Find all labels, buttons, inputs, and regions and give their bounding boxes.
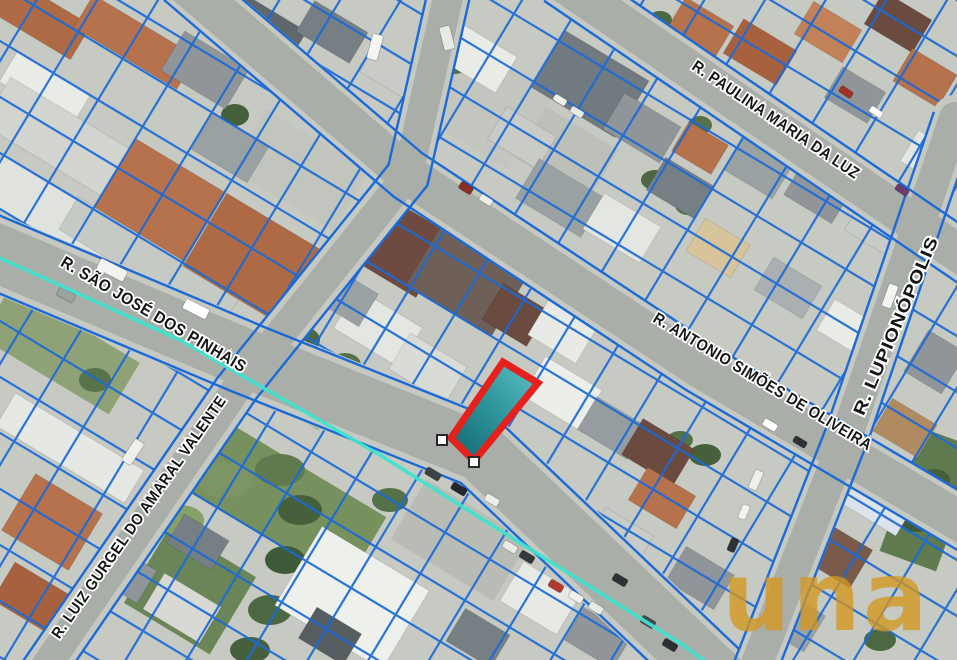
parcel-handle[interactable] xyxy=(437,435,447,445)
parcel-handle[interactable] xyxy=(469,457,479,467)
tree xyxy=(689,444,721,466)
tree xyxy=(255,454,305,486)
watermark-logo: una xyxy=(722,541,929,653)
map-canvas: R. SÃO JOSÉ DOS PINHAIS R. LUIZ GURGEL D… xyxy=(0,0,957,660)
map-view[interactable]: R. SÃO JOSÉ DOS PINHAIS R. LUIZ GURGEL D… xyxy=(0,0,957,660)
